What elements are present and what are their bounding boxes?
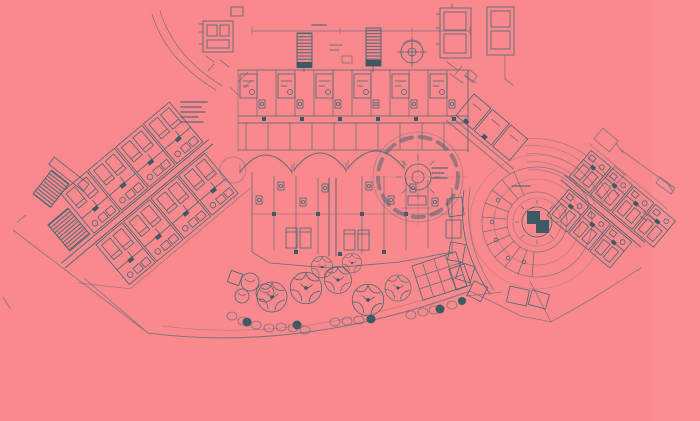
paper-light-edge [652,0,700,421]
floor-plan-scan [0,0,700,421]
elevator-shaft-1 [297,33,312,72]
floor-plan-drawing [0,0,700,421]
elevator-shaft-2 [366,28,381,72]
